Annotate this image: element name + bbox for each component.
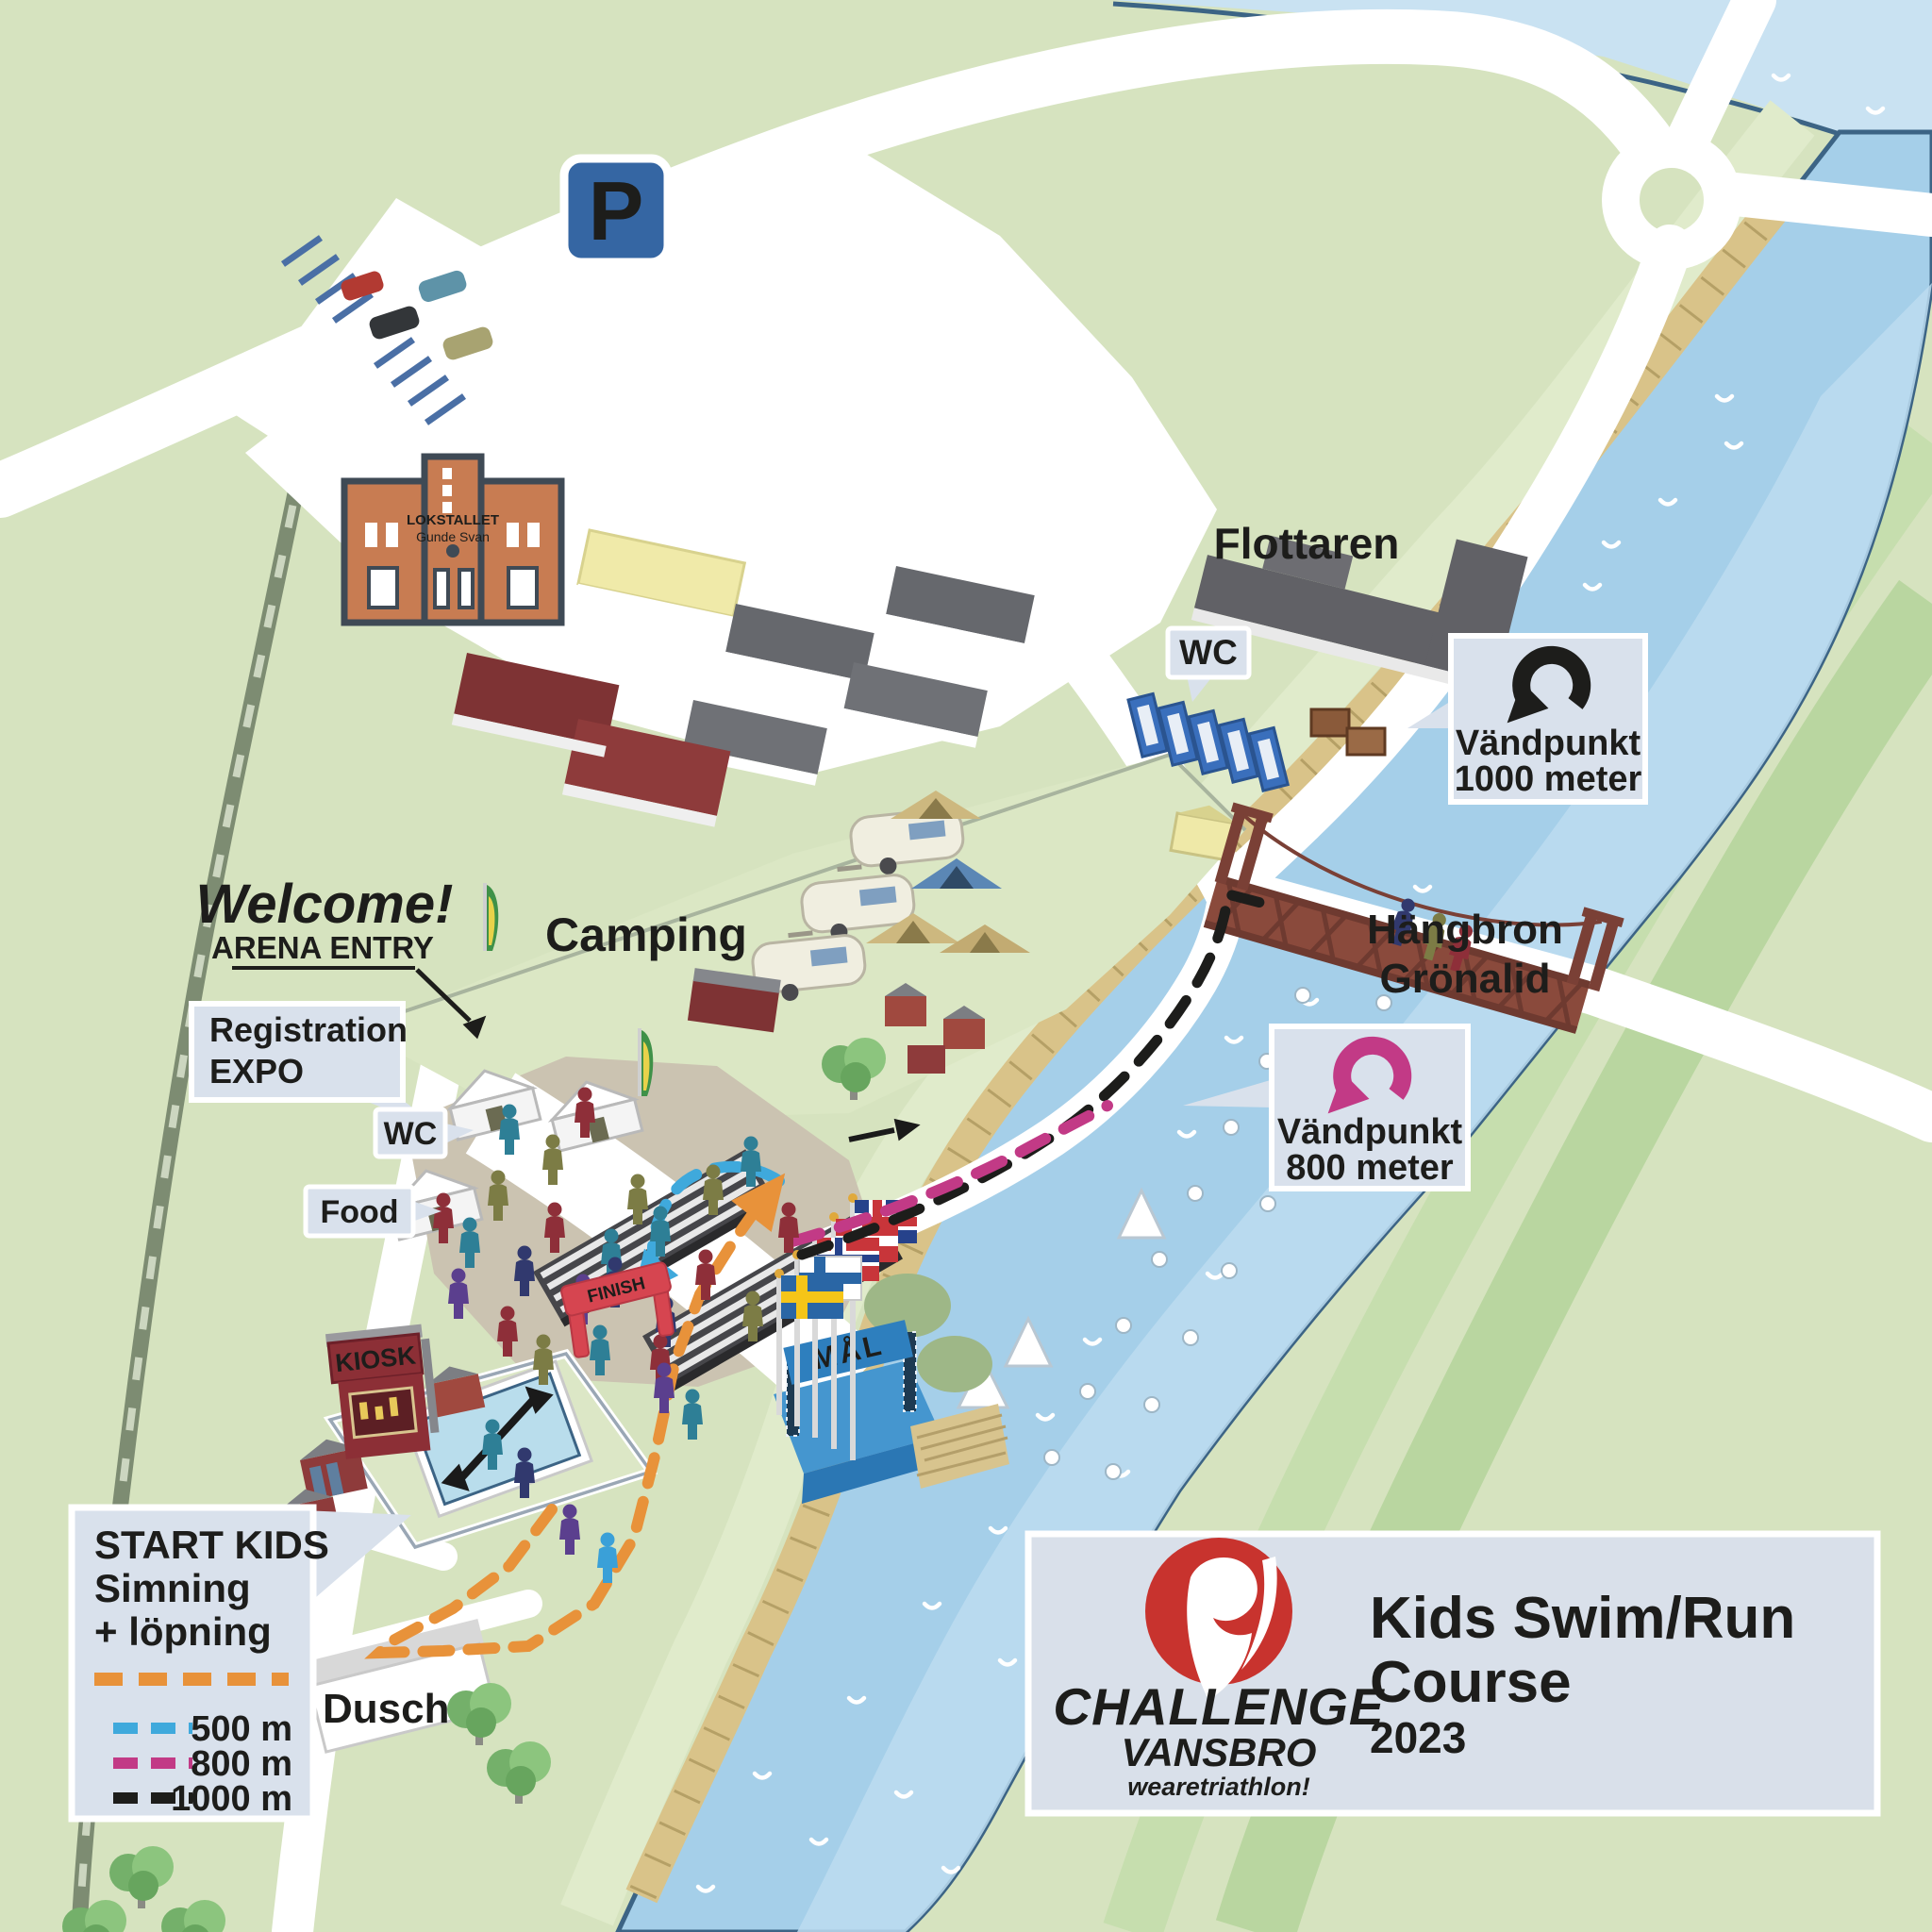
- svg-text:Grönalid: Grönalid: [1380, 956, 1551, 1002]
- lokstallet-name: LOKSTALLET: [407, 512, 499, 528]
- wc-arena-label: WC: [384, 1116, 438, 1152]
- title-banner: CHALLENGE VANSBRO wearetriathlon! Kids S…: [1028, 1534, 1877, 1813]
- registration-line2: EXPO: [209, 1052, 304, 1091]
- logo-city: VANSBRO: [1122, 1730, 1317, 1774]
- turn-1000-line1: Vändpunkt: [1456, 724, 1641, 763]
- svg-text:Welcome!: Welcome!: [196, 874, 454, 935]
- flottaren-label: Flottaren: [1214, 519, 1400, 568]
- dusch-label: Dusch: [323, 1686, 449, 1732]
- turn-800-line1: Vändpunkt: [1277, 1112, 1463, 1152]
- registration-line1: Registration: [209, 1010, 408, 1049]
- start-kids-line3: + löpning: [94, 1609, 272, 1654]
- map-title-year: 2023: [1370, 1713, 1466, 1762]
- turn-800-line2: 800 meter: [1286, 1148, 1454, 1188]
- legend-label-1000: 1000 m: [171, 1779, 292, 1819]
- lokstallet-subname: Gunde Svan: [416, 529, 490, 544]
- course-map: LOKSTALLET Gunde Svan: [0, 0, 1932, 1932]
- lokstallet-building: LOKSTALLET Gunde Svan: [344, 457, 561, 623]
- logo-tagline: wearetriathlon!: [1127, 1773, 1310, 1801]
- legend-label-500: 500 m: [191, 1709, 292, 1749]
- svg-text:Hängbron: Hängbron: [1367, 907, 1563, 953]
- map-title-line1: Kids Swim/Run: [1370, 1586, 1795, 1651]
- turn-1000-line2: 1000 meter: [1455, 759, 1642, 799]
- start-kids-line1: START KIDS: [94, 1523, 329, 1567]
- svg-text:ARENA ENTRY: ARENA ENTRY: [211, 930, 434, 965]
- wc-top-label: WC: [1179, 633, 1238, 672]
- logo-brand: CHALLENGE: [1053, 1677, 1386, 1736]
- map-title-line2: Course: [1370, 1650, 1572, 1715]
- parking-sign-label: P: [589, 164, 644, 258]
- food-label: Food: [320, 1194, 398, 1230]
- start-kids-line2: Simning: [94, 1566, 251, 1610]
- camping-label: Camping: [545, 908, 747, 961]
- legend-label-800: 800 m: [191, 1744, 292, 1784]
